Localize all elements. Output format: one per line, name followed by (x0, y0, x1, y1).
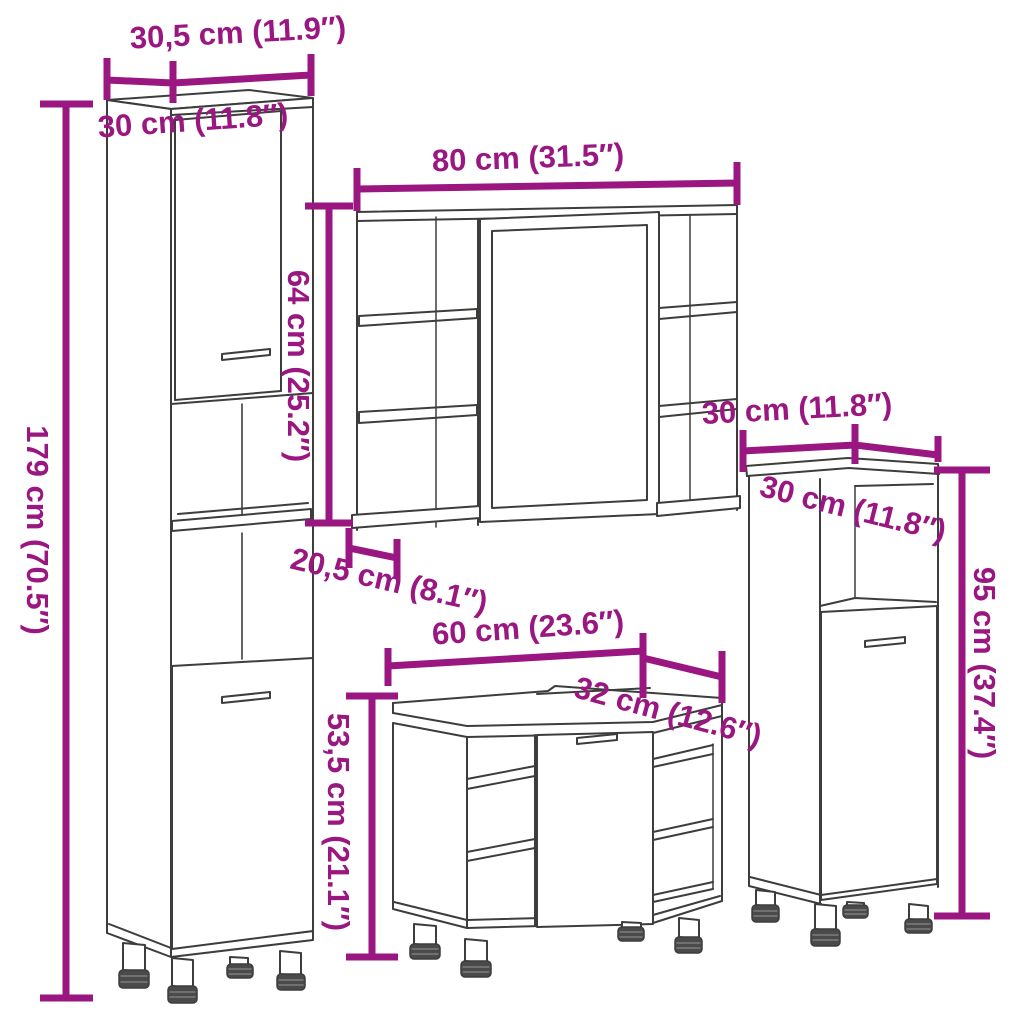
mirror-cabinet-height-label: 64 cm (25.2″) (280, 270, 316, 462)
mirror-cabinet-drawing (352, 205, 740, 530)
mirror-cabinet-width-label: 80 cm (31.5″) (431, 137, 624, 180)
dimension-diagram: 30,5 cm (11.9″) 30 cm (11.8″) 179 cm (70… (0, 0, 1024, 1024)
side-cabinet-feet (752, 890, 932, 946)
tall-cabinet-drawing (107, 90, 313, 1003)
sink-cabinet-height-label: 53,5 cm (21.1″) (320, 713, 356, 931)
side-cabinet-height-label: 95 cm (37.4″) (966, 567, 1002, 759)
tall-cabinet-height-label: 179 cm (70.5″) (19, 425, 55, 635)
